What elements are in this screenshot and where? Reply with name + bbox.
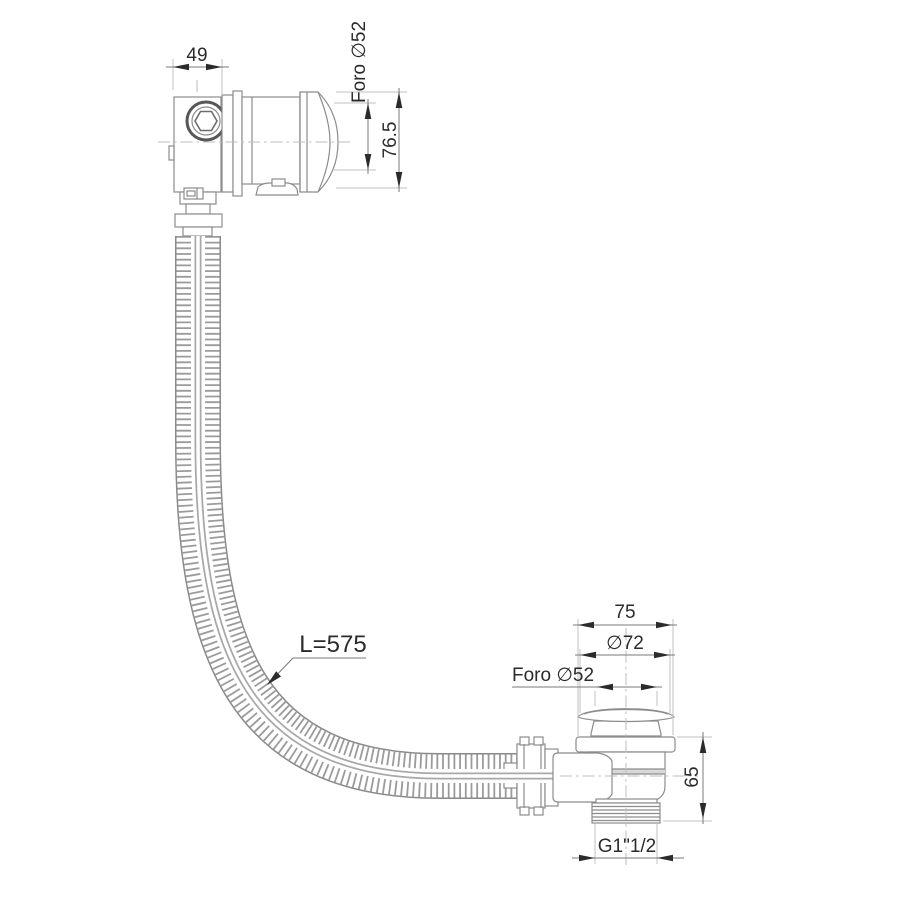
dim-drain-cap: ∅72 [575,633,675,658]
overflow-side-lug [169,146,174,160]
overflow-cap [222,91,338,196]
drain-side-inlet [553,753,612,802]
dim-overflow-hole: Foro ∅52 [349,21,371,174]
overflow-hex-screw [187,102,225,140]
drain-fitting [553,709,675,823]
dim-label-drain-flange: 75 [614,602,635,623]
dim-label-overflow-hole: Foro ∅52 [349,21,370,103]
drawing-canvas: 49 Foro ∅52 76.5 L=575 75 ∅72 Foro ∅52 [0,0,900,899]
dim-hose-length: L=575 [267,631,367,685]
dim-label-drain-thread: G1"1/2 [598,836,657,857]
dim-label-drain-hole: Foro ∅52 [512,665,594,686]
technical-drawing: 49 Foro ∅52 76.5 L=575 75 ∅72 Foro ∅52 [0,0,900,899]
overflow-fitting [169,91,338,236]
dim-label-drain-cap: ∅72 [606,633,644,654]
dim-drain-thread: G1"1/2 [572,836,684,861]
dim-label-hose-length: L=575 [299,631,366,658]
hose-center-band [198,236,556,776]
dim-drain-hole: Foro ∅52 [512,665,662,690]
dim-label-overflow-height: 76.5 [380,122,401,159]
drain-body [553,752,665,802]
dim-drain-flange: 75 [573,602,677,628]
overflow-clip [184,188,203,199]
dim-drain-height: 65 [682,732,706,824]
dim-label-drain-height: 65 [682,766,703,787]
dim-overflow-height: 76.5 [380,88,402,192]
dim-overflow-width: 49 [166,45,229,70]
dim-label-overflow-width: 49 [186,45,207,66]
